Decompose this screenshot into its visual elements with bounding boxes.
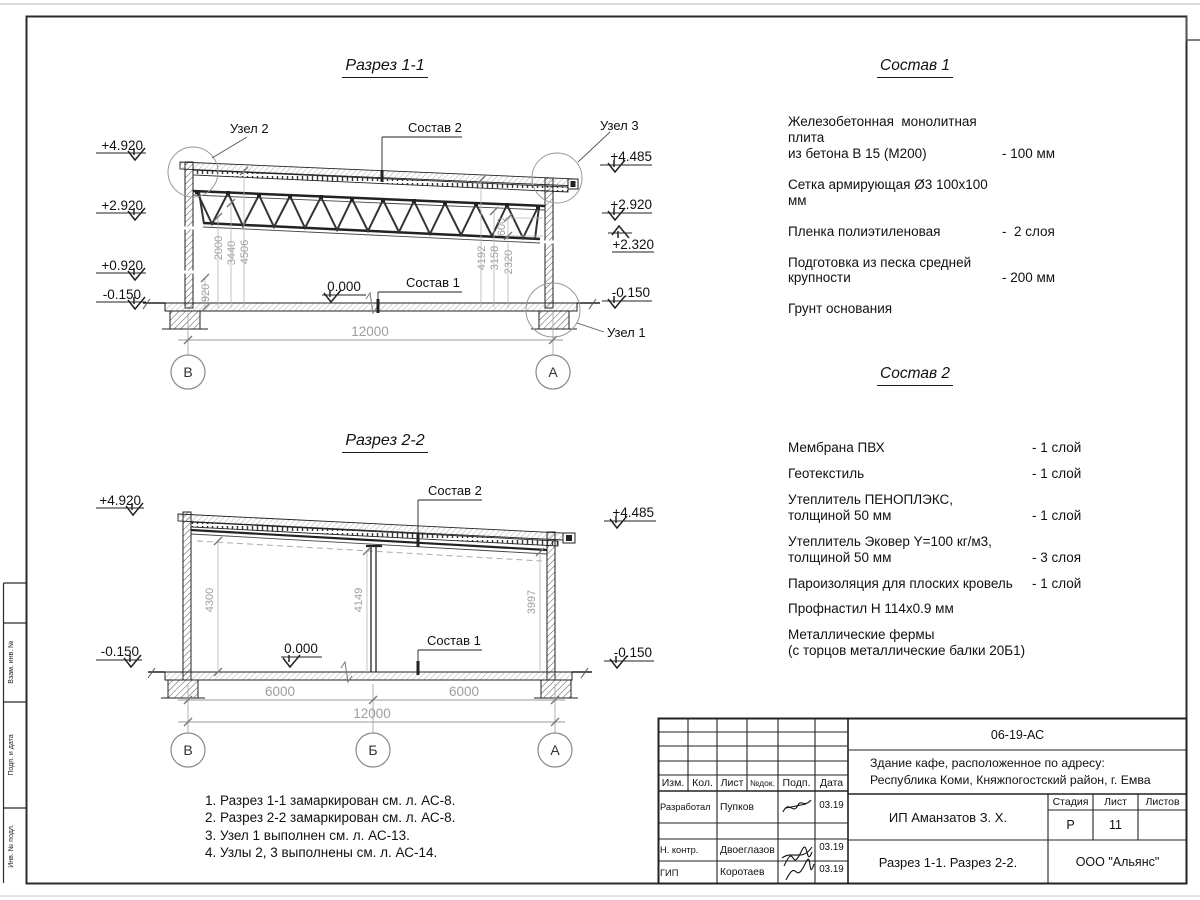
sostav1-title-wrap: Состав 1 <box>820 57 1010 78</box>
zero-level-label: 0.000 <box>327 279 361 294</box>
sheet-title: Разрез 1-1. Разрез 2-2. <box>848 840 1048 884</box>
list-item: Пароизоляция для плоских кровель - 1 сло… <box>788 576 1118 592</box>
material-text: Пленка полиэтиленовая <box>788 224 940 240</box>
dim-lines-vert <box>218 541 540 672</box>
dim-12000: 12000 <box>353 706 391 721</box>
grid-axis-circle: В А <box>171 355 570 389</box>
list-item: Утеплитель Эковер Y=100 кг/м3, толщиной … <box>788 534 1118 566</box>
stage-value: Р <box>1048 810 1093 840</box>
dim-3997: 3997 <box>526 590 538 614</box>
footing <box>539 311 569 329</box>
date-razrabotal: 03.19 <box>815 795 848 815</box>
list-item: Подготовка из песка средней крупности - … <box>788 255 1088 287</box>
margin-stamp-column <box>4 583 27 883</box>
svg-text:+4.920: +4.920 <box>101 138 143 153</box>
note-line: 1. Разрез 1-1 замаркирован см. л. АС-8. <box>205 792 625 809</box>
material-text: Грунт основания <box>788 301 892 317</box>
sostav2-list: Мембрана ПВХ - 1 слой Геотекстиль - 1 сл… <box>788 440 1118 659</box>
material-text: Подготовка из песка средней крупности <box>788 255 971 287</box>
col-header-kol: Кол. <box>688 775 717 791</box>
sostav1-title: Состав 1 <box>877 57 953 78</box>
material-text: Геотекстиль <box>788 466 864 482</box>
floor-slab <box>165 672 572 680</box>
elevation-marks-left-1-1: +4.920 +2.920 +0.920 -0.150 <box>96 138 146 309</box>
signature-scribbles <box>782 800 814 880</box>
footing <box>170 311 200 329</box>
name-razrabotal: Пупков <box>720 791 778 823</box>
sostav1-label: Состав 1 <box>406 275 460 290</box>
svg-text:+2.920: +2.920 <box>101 198 143 213</box>
svg-text:+4.920: +4.920 <box>99 493 141 508</box>
list-item: Грунт основания <box>788 301 1088 317</box>
svg-text:+2.320: +2.320 <box>612 237 654 252</box>
svg-text:-0.150: -0.150 <box>101 644 139 659</box>
list-item: Сетка армирующая Ø3 100x100 мм <box>788 177 1088 209</box>
material-qty: - 200 мм <box>1002 270 1088 286</box>
uzel2-label: Узел 2 <box>230 121 269 136</box>
doc-number: 06-19-АС <box>848 720 1187 750</box>
section-2-2-title-wrap: Разрез 2-2 <box>300 432 470 453</box>
material-qty: - 100 мм <box>1002 146 1088 162</box>
dim-4506: 4506 <box>239 240 251 264</box>
footing <box>168 680 198 698</box>
role-gip: ГИП <box>660 861 717 884</box>
col-header-ndoc: №док. <box>747 775 778 791</box>
material-qty: - 1 слой <box>1032 508 1118 524</box>
dim-600: 600 <box>496 218 508 236</box>
grid-axis-circle: В Б А <box>171 733 572 767</box>
dim-6000-left: 6000 <box>265 684 295 699</box>
role-nkontr: Н. контр. <box>660 839 717 861</box>
dim-12000: 12000 <box>351 324 389 339</box>
material-text: Металлические фермы (с торцов металличес… <box>788 627 1025 659</box>
material-qty: - 1 слой <box>1032 576 1118 592</box>
svg-text:+4.485: +4.485 <box>610 149 652 164</box>
client-name: ИП Аманзатов З. Х. <box>848 794 1048 840</box>
material-qty: - 1 слой <box>1032 466 1118 482</box>
list-item: Железобетонная монолитная плита из бетон… <box>788 114 1088 162</box>
sostav1-label: Состав 1 <box>427 633 481 648</box>
dim-4149: 4149 <box>353 588 365 612</box>
dim-lines-right <box>481 180 543 308</box>
material-qty: - 1 слой <box>1032 440 1118 456</box>
uzel1-label: Узел 1 <box>607 325 646 340</box>
middle-column <box>366 546 382 672</box>
name-nkontr: Двоеглазов <box>720 839 778 861</box>
role-razrabotal: Разработал <box>660 791 717 823</box>
dim-920: 920 <box>200 284 212 302</box>
notes-block: 1. Разрез 1-1 замаркирован см. л. АС-8. … <box>205 792 625 861</box>
material-text: Утеплитель ПЕНОПЛЭКС, толщиной 50 мм <box>788 492 953 524</box>
svg-text:+2.920: +2.920 <box>610 197 652 212</box>
col-header-podp: Подп. <box>778 775 815 791</box>
svg-text:Б: Б <box>368 742 377 758</box>
section-1-1-drawing: 12000 В А 920 2000 3440 4506 <box>96 118 654 389</box>
sostav1-list: Железобетонная монолитная плита из бетон… <box>788 114 1088 317</box>
note-line: 3. Узел 1 выполнен см. л. АС-13. <box>205 827 625 844</box>
company-name: ООО "Альянс" <box>1048 840 1187 884</box>
svg-text:+4.485: +4.485 <box>612 505 654 520</box>
material-text: Мембрана ПВХ <box>788 440 885 456</box>
name-gip: Коротаев <box>720 861 778 884</box>
section-1-1-title-wrap: Разрез 1-1 <box>300 57 470 78</box>
sostav1-leader <box>418 650 482 675</box>
margin-stamp-label: Инв. № подл. <box>8 824 15 868</box>
svg-text:А: А <box>550 742 560 758</box>
dim-6000-right: 6000 <box>449 684 479 699</box>
margin-stamp-label: Подп. и дата <box>8 734 15 775</box>
material-text: Пароизоляция для плоских кровель <box>788 576 1013 592</box>
dim-2320: 2320 <box>503 250 515 274</box>
list-item: Профнастил Н 114x0.9 мм <box>788 601 1118 617</box>
sostav2-title-wrap: Состав 2 <box>820 365 1010 386</box>
material-text: Профнастил Н 114x0.9 мм <box>788 601 954 617</box>
col-header-izm: Изм. <box>658 775 688 791</box>
dim-4300: 4300 <box>204 588 216 612</box>
svg-text:-0.150: -0.150 <box>103 287 141 302</box>
sostav2-label: Состав 2 <box>408 120 462 135</box>
svg-text:В: В <box>183 364 192 380</box>
steel-truss <box>193 190 545 243</box>
list-item: Геотекстиль - 1 слой <box>788 466 1118 482</box>
section-2-2-title: Разрез 2-2 <box>342 432 427 453</box>
dim-3158: 3158 <box>489 246 501 270</box>
note-line: 2. Разрез 2-2 замаркирован см. л. АС-8. <box>205 809 625 826</box>
footing <box>541 680 571 698</box>
svg-text:В: В <box>183 742 192 758</box>
stage-header: Стадия <box>1048 794 1093 810</box>
date-gip: 03.19 <box>815 861 848 877</box>
project-name: Здание кафе, расположенное по адресу: Ре… <box>870 750 1187 794</box>
section-2-2-drawing: 6000 6000 12000 В Б А 4300 4149 3997 Сос… <box>96 483 656 767</box>
svg-text:А: А <box>548 364 558 380</box>
margin-stamp-label: Взам. инв. № <box>8 640 15 683</box>
col-header-data: Дата <box>815 775 848 791</box>
frame-corner-step <box>1187 17 1200 41</box>
material-qty: - 3 слоя <box>1032 550 1118 566</box>
uzel3-label: Узел 3 <box>600 118 639 133</box>
date-nkontr: 03.19 <box>815 839 848 855</box>
list-item: Пленка полиэтиленовая - 2 слоя <box>788 224 1088 240</box>
sheet-number: 11 <box>1093 810 1138 840</box>
material-qty: - 2 слоя <box>1002 224 1088 240</box>
material-text: Утеплитель Эковер Y=100 кг/м3, толщиной … <box>788 534 992 566</box>
section-1-1-title: Разрез 1-1 <box>342 57 427 78</box>
sheets-header: Листов <box>1138 794 1187 810</box>
dim-2000: 2000 <box>213 236 225 260</box>
sheets-total <box>1138 810 1187 840</box>
svg-text:-0.150: -0.150 <box>614 645 652 660</box>
floor-slab <box>165 303 577 311</box>
svg-text:-0.150: -0.150 <box>612 285 650 300</box>
svg-text:+0.920: +0.920 <box>101 258 143 273</box>
list-item: Мембрана ПВХ - 1 слой <box>788 440 1118 456</box>
elevation-marks-right-1-1: +4.485 +2.920 +2.320 -0.150 <box>600 149 654 308</box>
dim-3440: 3440 <box>226 241 238 265</box>
sheet-header: Лист <box>1093 794 1138 810</box>
list-item: Утеплитель ПЕНОПЛЭКС, толщиной 50 мм - 1… <box>788 492 1118 524</box>
sostav2-title: Состав 2 <box>877 365 953 386</box>
drawing-sheet: { "section1": { "title": "Разрез 1-1", "… <box>0 0 1200 900</box>
note-line: 4. Узлы 2, 3 выполнены см. л. АС-14. <box>205 844 625 861</box>
zero-level-label: 0.000 <box>284 641 318 656</box>
material-text: Сетка армирующая Ø3 100x100 мм <box>788 177 1002 209</box>
sostav2-label: Состав 2 <box>428 483 482 498</box>
list-item: Металлические фермы (с торцов металличес… <box>788 627 1118 659</box>
dim-4192: 4192 <box>476 246 488 270</box>
material-text: Железобетонная монолитная плита из бетон… <box>788 114 1002 162</box>
col-header-list: Лист <box>717 775 747 791</box>
